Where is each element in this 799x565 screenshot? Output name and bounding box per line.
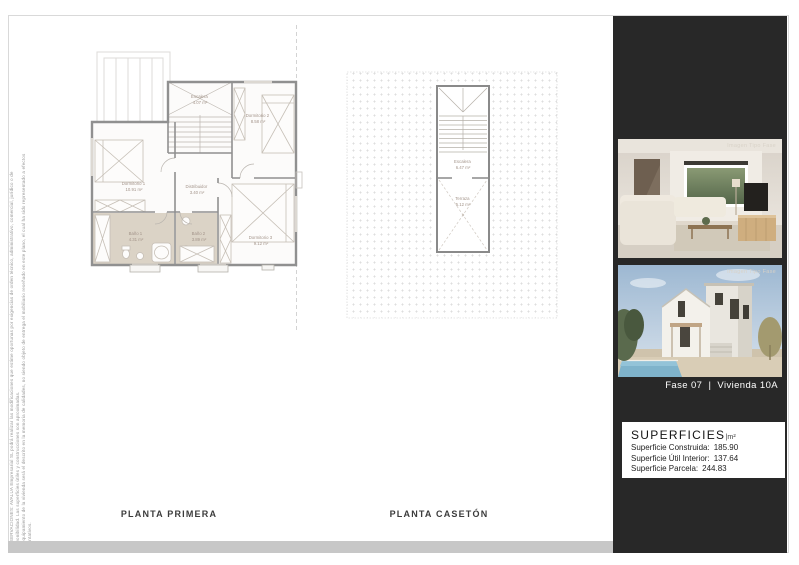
surface-row-label: Superficie Útil Interior: xyxy=(631,454,710,463)
surface-row-label: Superficie Parcela: xyxy=(631,464,698,473)
surface-row: Superficie Construida:185.90 xyxy=(622,443,785,454)
interior-photo: Imagen Tipo Fase xyxy=(618,139,782,258)
info-panel: Imagen Tipo Fase xyxy=(613,16,787,553)
footer-bar xyxy=(8,541,613,553)
plan-planta-primera: Escalera 4.07 m² Dormitorio 1 10.91 m² D… xyxy=(92,25,302,330)
floorplans-drawing: Escalera 4.07 m² Dormitorio 1 10.91 m² D… xyxy=(0,0,613,555)
label-bano-2: Baño 2 3.89 m² xyxy=(192,231,207,242)
surface-row-label: Superficie Construida: xyxy=(631,443,710,452)
surfaces-unit: |m² xyxy=(725,434,736,441)
surfaces-title-text: SUPERFICIES xyxy=(631,428,725,442)
plan1-title: PLANTA PRIMERA xyxy=(84,509,254,519)
surface-row-value: 244.83 xyxy=(702,464,726,473)
interior-render xyxy=(618,139,782,258)
plan-planta-caseton: Escalera 6.47 m² Terraza 5.12 m² xyxy=(347,72,557,318)
label-terraza: Terraza 5.12 m² xyxy=(455,196,471,207)
phase-caption: Fase 07 | Vivienda 10A xyxy=(665,380,778,391)
surface-row: Superficie Parcela:244.83 xyxy=(622,464,785,475)
exterior-render xyxy=(618,265,782,377)
surface-row: Superficie Útil Interior:137.64 xyxy=(622,454,785,465)
photo-watermark: Imagen Tipo Fase xyxy=(727,269,776,275)
surface-row-value: 137.64 xyxy=(714,454,738,463)
surfaces-card: SUPERFICIES|m² Superficie Construida:185… xyxy=(622,422,785,478)
photo-watermark: Imagen Tipo Fase xyxy=(727,143,776,149)
plan-sheet: OBSERVACIONES: AVALUA Empresarial SL pod… xyxy=(0,0,799,565)
label-escalera-1: Escalera 4.07 m² xyxy=(191,94,209,105)
plan2-title: PLANTA CASETÓN xyxy=(354,509,524,519)
surface-row-value: 185.90 xyxy=(714,443,738,452)
terrace-center-dot xyxy=(462,214,464,216)
label-escalera-2: Escalera 6.47 m² xyxy=(454,159,472,170)
label-bano-1: Baño 1 4.31 m² xyxy=(129,231,144,242)
exterior-photo: Imagen Tipo Fase xyxy=(618,265,782,377)
surfaces-title: SUPERFICIES|m² xyxy=(622,422,785,443)
